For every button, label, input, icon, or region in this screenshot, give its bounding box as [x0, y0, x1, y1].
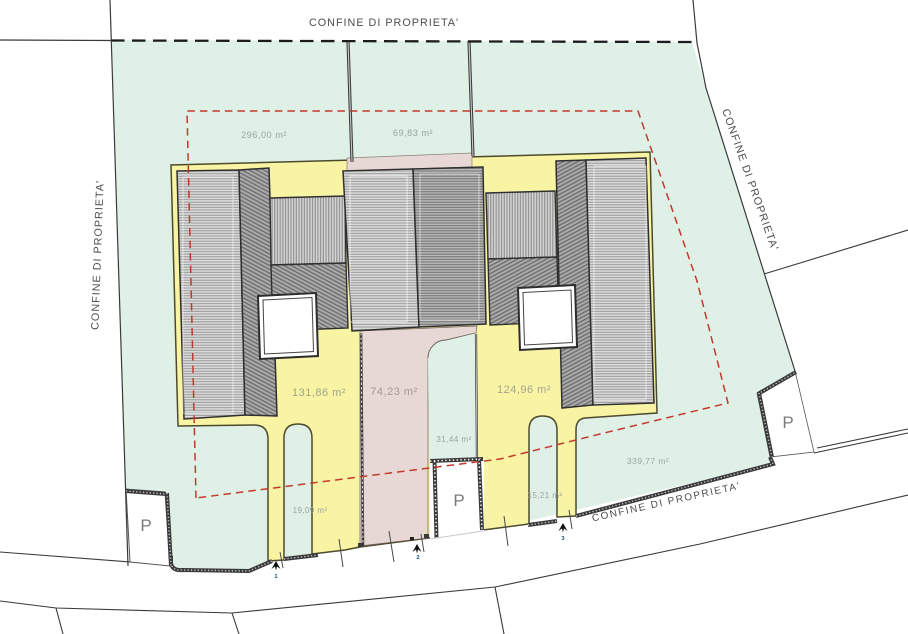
svg-text:19,09 m²: 19,09 m² [293, 506, 328, 515]
svg-text:CONFINE DI PROPRIETA': CONFINE DI PROPRIETA' [309, 17, 459, 29]
svg-text:3: 3 [561, 536, 565, 542]
svg-text:69,83 m²: 69,83 m² [393, 128, 433, 138]
svg-text:P: P [782, 413, 793, 432]
svg-text:2: 2 [416, 555, 419, 561]
svg-text:124,96 m²: 124,96 m² [497, 384, 551, 396]
svg-text:339,77 m²: 339,77 m² [627, 456, 669, 466]
svg-text:1: 1 [274, 574, 278, 580]
svg-text:131,86 m²: 131,86 m² [292, 387, 346, 399]
svg-text:15,21 m²: 15,21 m² [528, 491, 563, 500]
svg-text:296,00 m²: 296,00 m² [241, 130, 287, 140]
svg-text:P: P [140, 516, 151, 535]
svg-text:CONFINE DI PROPRIETA': CONFINE DI PROPRIETA' [89, 180, 106, 330]
svg-text:P: P [453, 491, 464, 510]
svg-text:31,44 m²: 31,44 m² [436, 435, 472, 444]
svg-text:74,23 m²: 74,23 m² [370, 386, 417, 398]
